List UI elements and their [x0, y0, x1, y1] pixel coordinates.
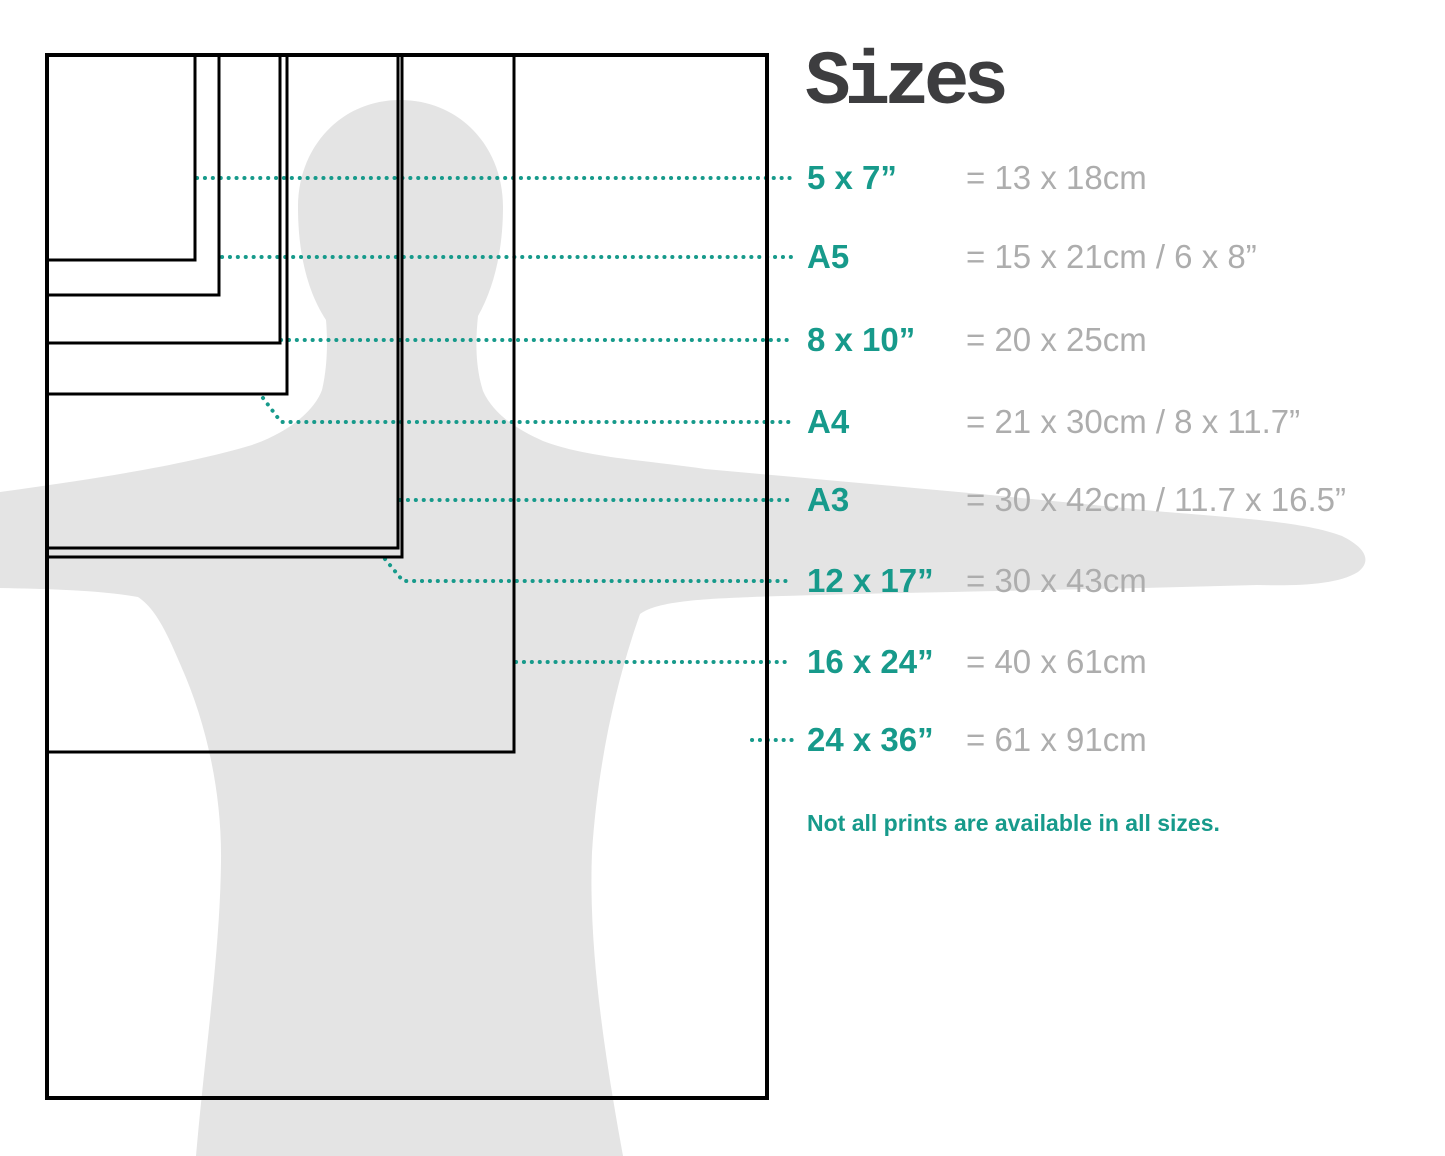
size-label: 5 x 7” [807, 156, 897, 200]
size-metric-equivalent: = 30 x 42cm / 11.7 x 16.5” [966, 478, 1346, 522]
size-label: 16 x 24” [807, 640, 934, 684]
size-row: 12 x 17”= 30 x 43cm [807, 559, 934, 603]
size-row: A5= 15 x 21cm / 6 x 8” [807, 235, 849, 279]
page-title: Sizes [805, 40, 1003, 127]
print-size-guide: Sizes 5 x 7”= 13 x 18cmA5= 15 x 21cm / 6… [0, 0, 1445, 1156]
size-metric-equivalent: = 21 x 30cm / 8 x 11.7” [966, 400, 1300, 444]
size-row: 24 x 36”= 61 x 91cm [807, 718, 934, 762]
size-label: A5 [807, 235, 849, 279]
size-label: 24 x 36” [807, 718, 934, 762]
size-row: A4= 21 x 30cm / 8 x 11.7” [807, 400, 849, 444]
size-label: A4 [807, 400, 849, 444]
size-diagram [0, 0, 1445, 1156]
size-row: A3= 30 x 42cm / 11.7 x 16.5” [807, 478, 849, 522]
size-label: A3 [807, 478, 849, 522]
print-rectangle [47, 55, 195, 260]
size-metric-equivalent: = 13 x 18cm [966, 156, 1147, 200]
size-label: 8 x 10” [807, 318, 915, 362]
size-metric-equivalent: = 61 x 91cm [966, 718, 1147, 762]
size-metric-equivalent: = 30 x 43cm [966, 559, 1147, 603]
size-row: 16 x 24”= 40 x 61cm [807, 640, 934, 684]
size-label: 12 x 17” [807, 559, 934, 603]
size-metric-equivalent: = 20 x 25cm [966, 318, 1147, 362]
size-row: 5 x 7”= 13 x 18cm [807, 156, 897, 200]
size-metric-equivalent: = 40 x 61cm [966, 640, 1147, 684]
availability-note: Not all prints are available in all size… [807, 808, 1220, 838]
size-row: 8 x 10”= 20 x 25cm [807, 318, 915, 362]
print-rectangle [47, 55, 280, 343]
size-metric-equivalent: = 15 x 21cm / 6 x 8” [966, 235, 1257, 279]
